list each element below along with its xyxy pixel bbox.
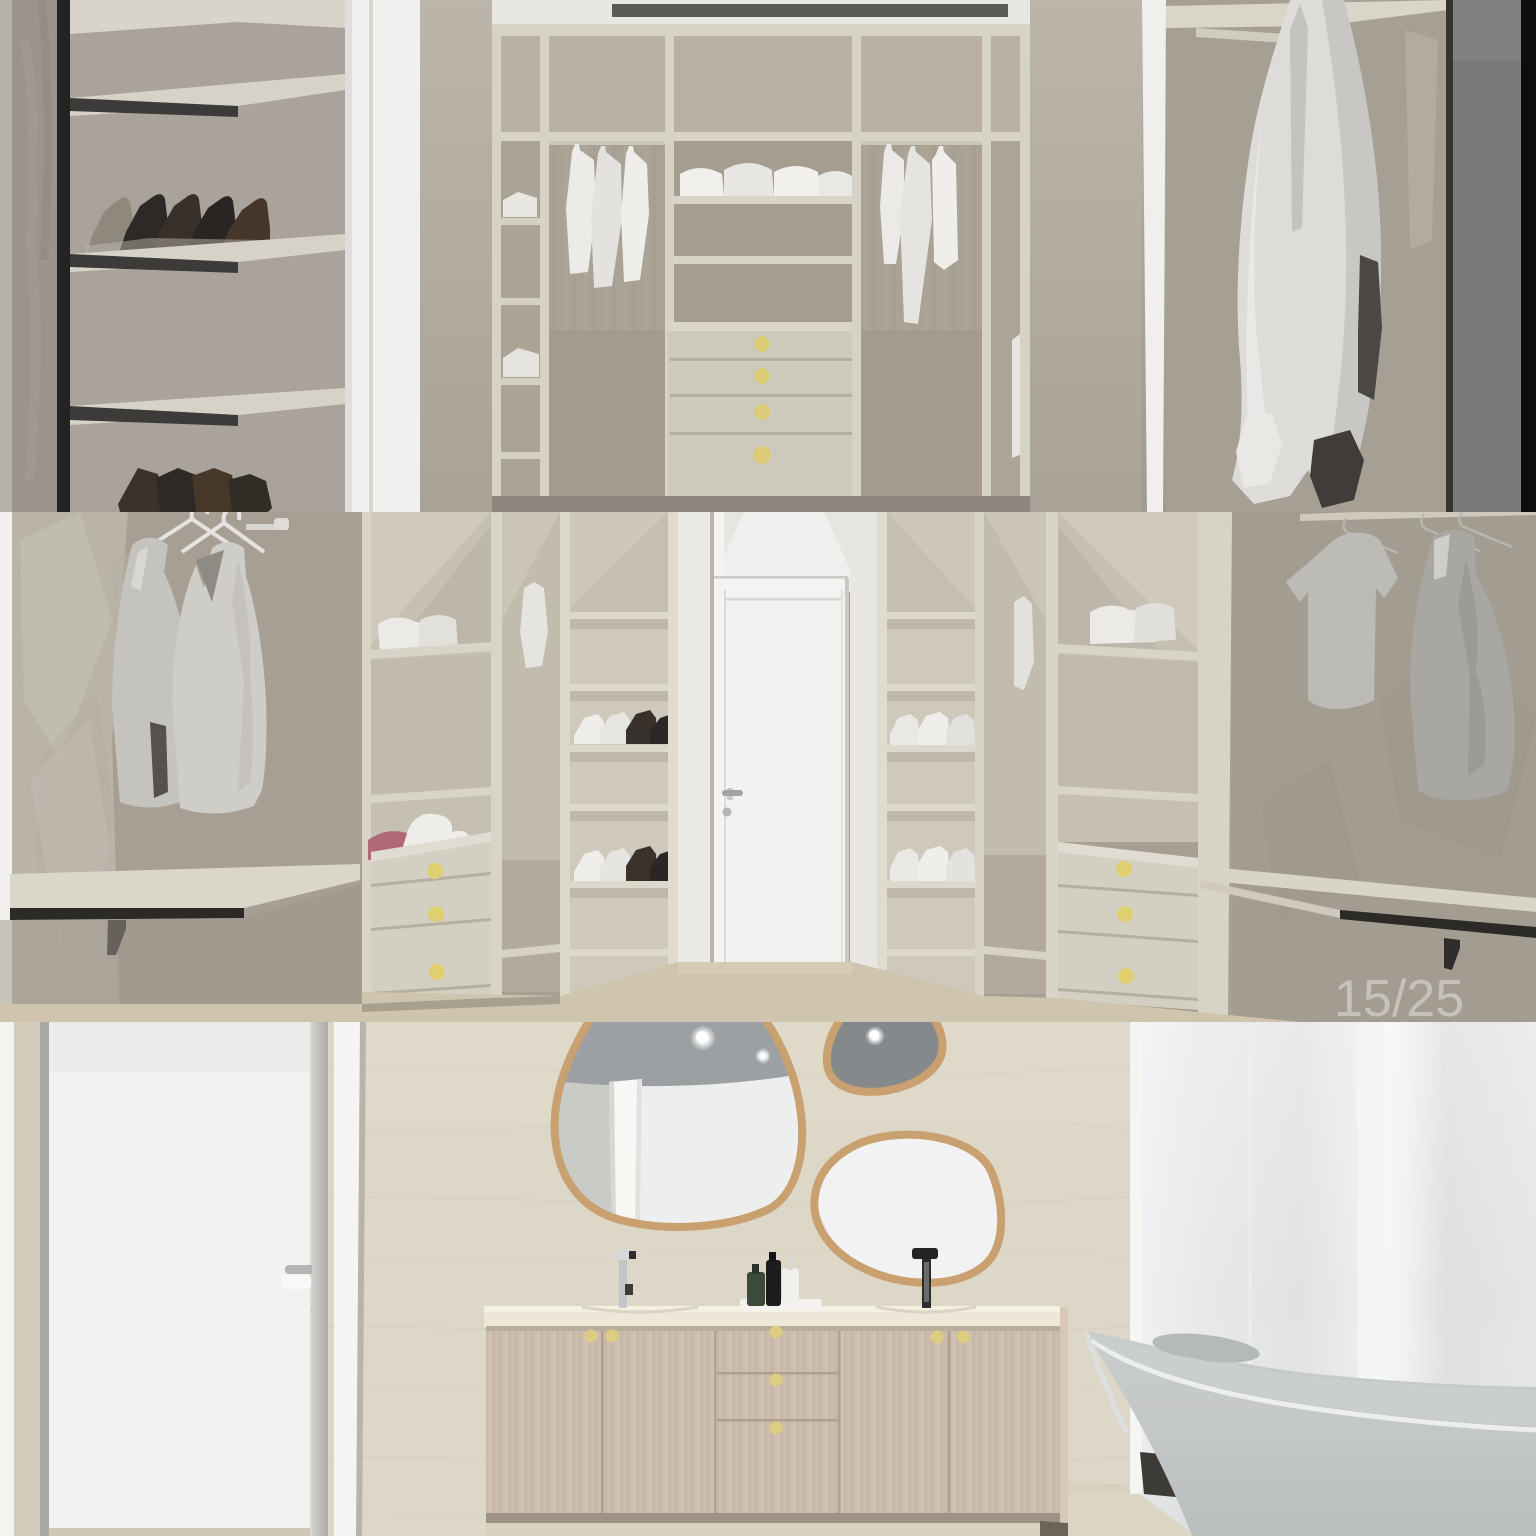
svg-text:15/25: 15/25 [1334,970,1464,1028]
